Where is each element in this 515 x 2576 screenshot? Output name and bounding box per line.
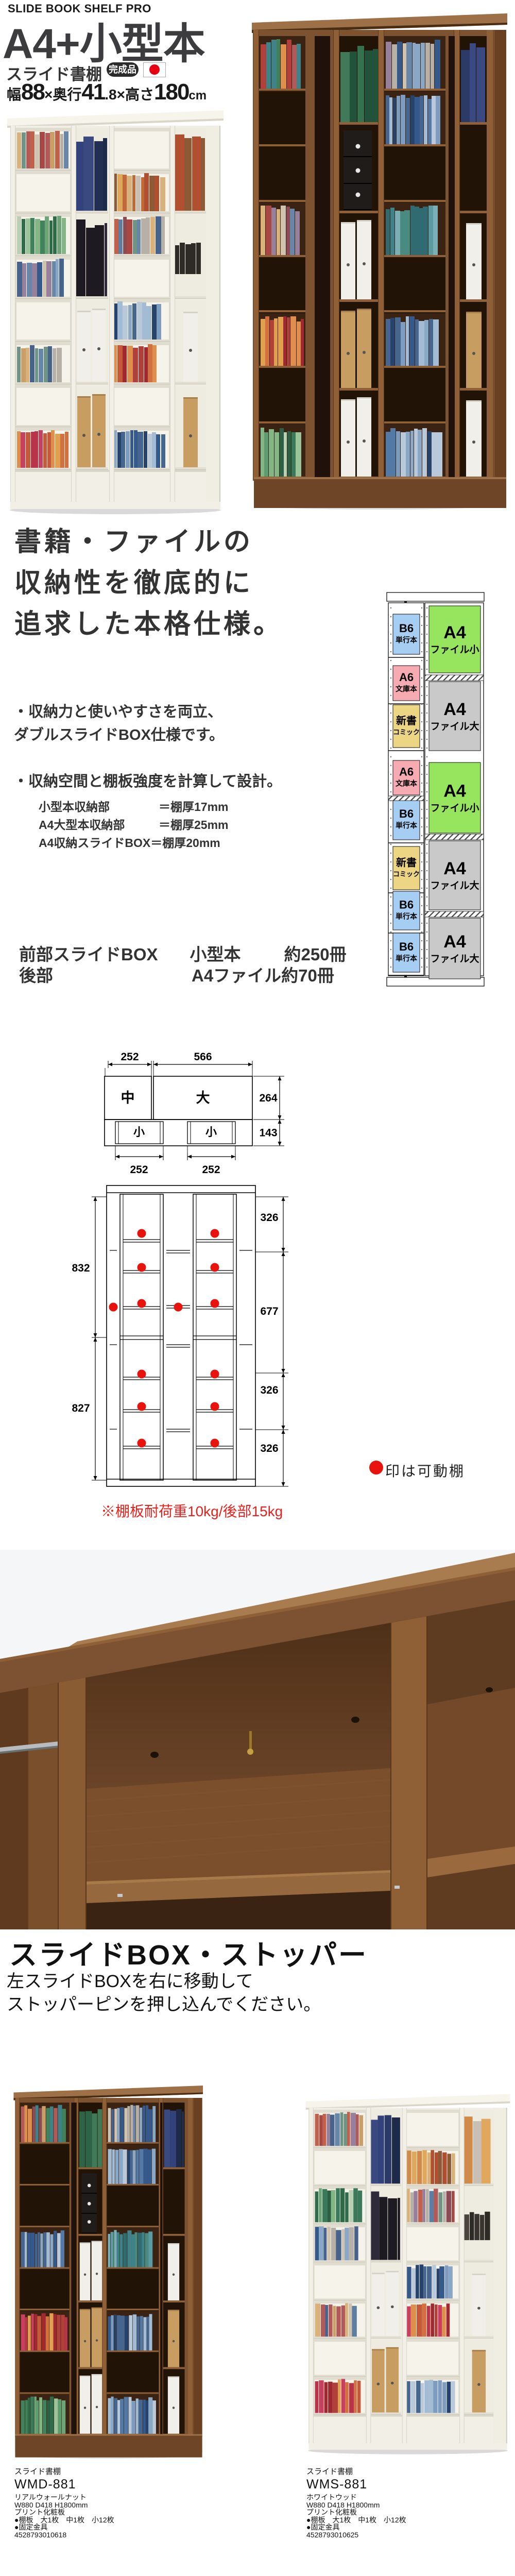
svg-text:832: 832 — [72, 1262, 90, 1274]
svg-text:ファイル大: ファイル大 — [430, 720, 479, 732]
svg-text:B6: B6 — [399, 622, 414, 635]
svg-text:新書: 新書 — [396, 856, 417, 869]
svg-text:ファイル大: ファイル大 — [430, 879, 479, 891]
svg-text:文庫本: 文庫本 — [396, 779, 418, 788]
svg-text:252: 252 — [202, 1164, 220, 1176]
svg-text:326: 326 — [260, 1212, 278, 1224]
svg-text:566: 566 — [194, 1051, 212, 1063]
svg-text:小: 小 — [133, 1126, 145, 1139]
svg-text:A4: A4 — [443, 623, 466, 642]
svg-text:326: 326 — [260, 1384, 278, 1396]
svg-text:大: 大 — [196, 1090, 210, 1106]
svg-text:264: 264 — [259, 1092, 277, 1104]
svg-text:単行本: 単行本 — [396, 821, 418, 829]
svg-text:中: 中 — [121, 1090, 135, 1106]
svg-text:252: 252 — [121, 1051, 139, 1063]
svg-text:コミック: コミック — [393, 728, 420, 736]
svg-text:文庫本: 文庫本 — [396, 685, 418, 693]
svg-text:ファイル小: ファイル小 — [430, 803, 479, 814]
svg-text:B6: B6 — [399, 807, 414, 820]
svg-text:A4: A4 — [443, 782, 466, 801]
svg-text:A4: A4 — [443, 859, 466, 878]
svg-text:A6: A6 — [399, 671, 414, 684]
svg-text:B6: B6 — [399, 940, 414, 953]
svg-text:単行本: 単行本 — [396, 912, 418, 921]
svg-text:ファイル小: ファイル小 — [430, 644, 479, 655]
svg-text:新書: 新書 — [396, 715, 417, 727]
svg-text:B6: B6 — [399, 899, 414, 911]
svg-text:143: 143 — [259, 1127, 277, 1139]
svg-text:単行本: 単行本 — [396, 954, 418, 962]
svg-text:252: 252 — [130, 1164, 148, 1176]
svg-text:A4: A4 — [443, 700, 466, 719]
svg-text:A4: A4 — [443, 932, 466, 952]
svg-text:677: 677 — [260, 1306, 278, 1317]
svg-text:ファイル大: ファイル大 — [430, 953, 479, 964]
svg-text:326: 326 — [260, 1443, 278, 1454]
svg-text:A6: A6 — [399, 766, 414, 778]
svg-text:827: 827 — [72, 1402, 90, 1414]
svg-text:コミック: コミック — [393, 870, 420, 878]
svg-text:単行本: 単行本 — [396, 636, 418, 644]
svg-text:小: 小 — [205, 1126, 217, 1139]
